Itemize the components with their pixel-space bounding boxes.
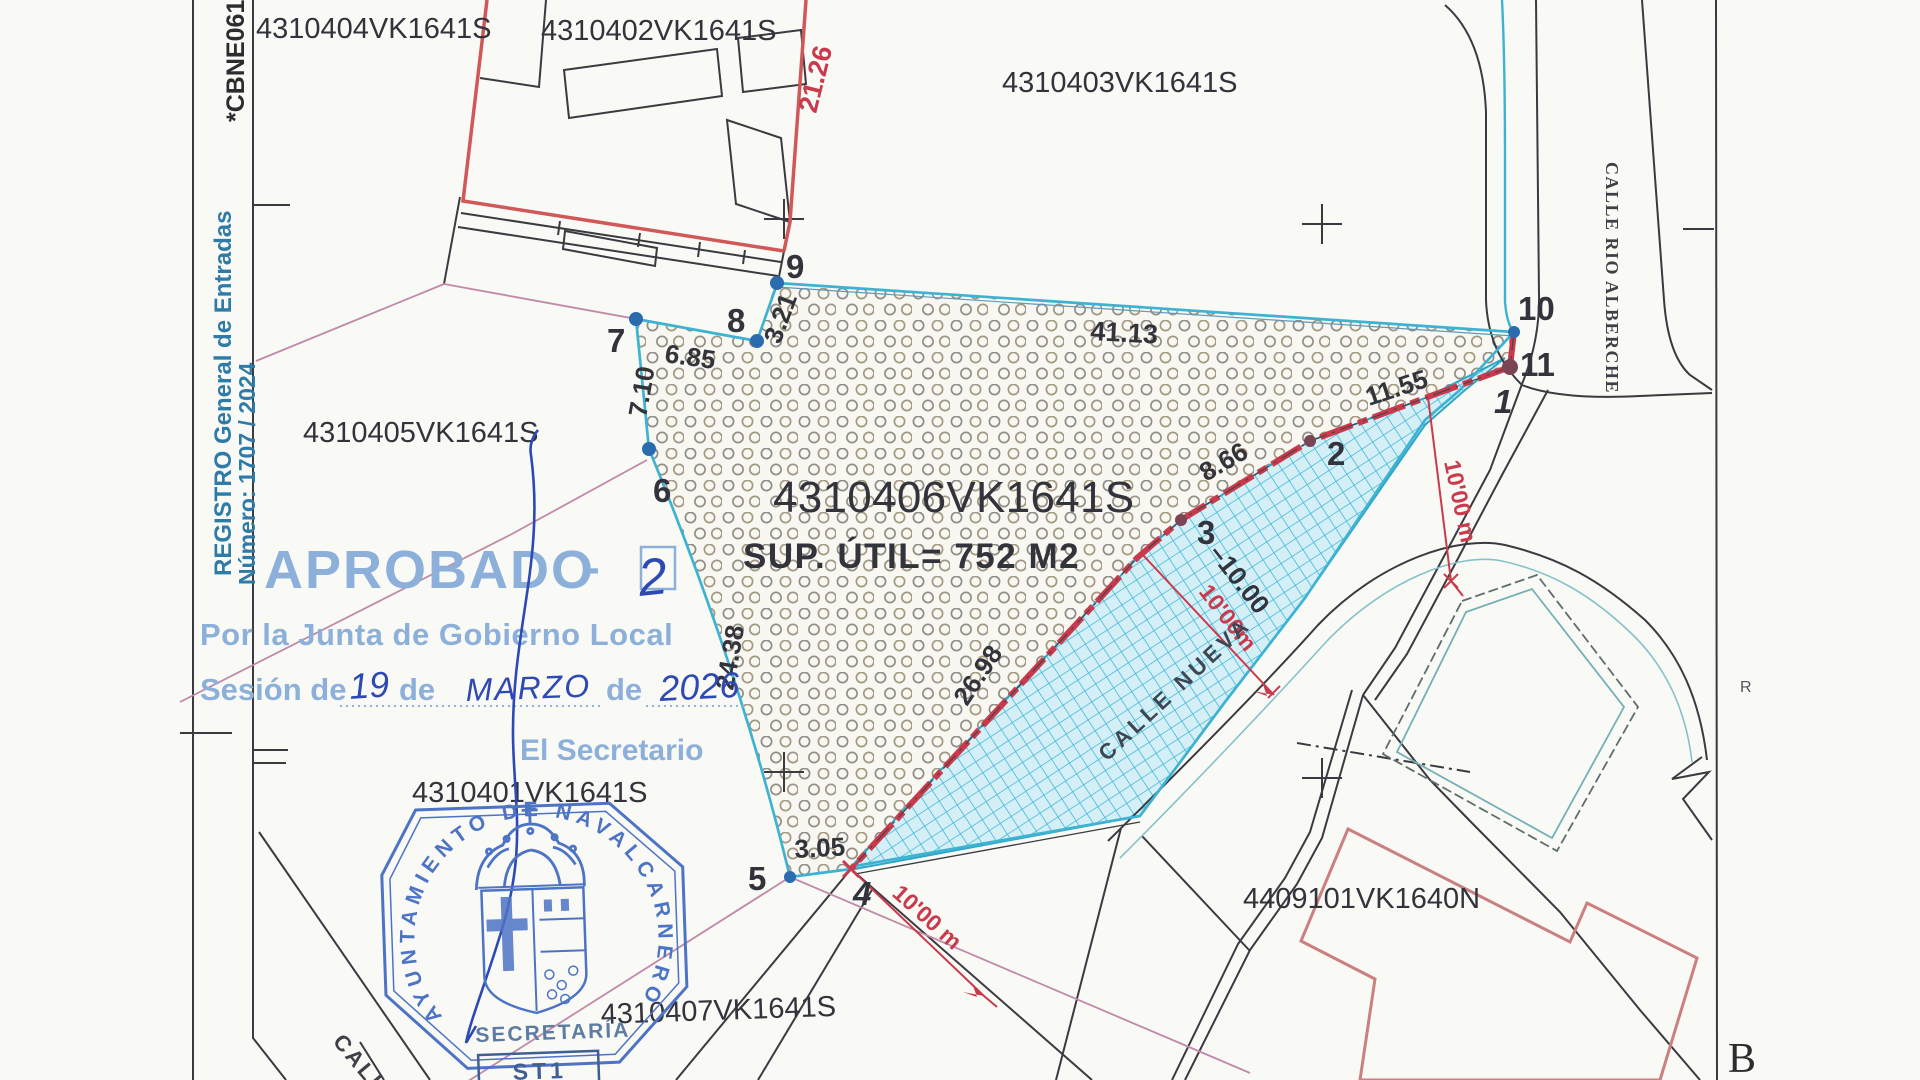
svg-text:10: 10 — [1518, 290, 1555, 327]
svg-text:de: de — [399, 672, 435, 707]
svg-text:7: 7 — [607, 322, 625, 359]
svg-text:4310402VK1641S: 4310402VK1641S — [541, 15, 776, 47]
svg-text:4409101VK1640N: 4409101VK1640N — [1243, 883, 1480, 915]
svg-text:R: R — [1740, 679, 1752, 696]
svg-text:APROBADO: APROBADO — [264, 540, 595, 600]
svg-text:1: 1 — [1494, 383, 1512, 420]
svg-text:2026: 2026 — [657, 664, 741, 709]
svg-text:El Secretario: El Secretario — [520, 734, 703, 767]
svg-text:de: de — [606, 672, 642, 707]
svg-text:8: 8 — [727, 302, 745, 339]
svg-text:Sesión de: Sesión de — [200, 672, 346, 707]
svg-text:11: 11 — [1520, 346, 1555, 383]
svg-text:*CBNE061: *CBNE061 — [222, 0, 250, 122]
svg-text:Número: 1707 / 2024: Número: 1707 / 2024 — [234, 362, 260, 585]
svg-text:9: 9 — [786, 248, 804, 285]
svg-text:4: 4 — [852, 875, 871, 912]
svg-text:41.13: 41.13 — [1090, 316, 1159, 349]
svg-text:3.05: 3.05 — [794, 831, 846, 864]
svg-text:Por la Junta de Gobierno Local: Por la Junta de Gobierno Local — [200, 617, 673, 652]
svg-text:19: 19 — [348, 663, 391, 707]
svg-text:4310404VK1641S: 4310404VK1641S — [256, 13, 491, 45]
svg-text:4310403VK1641S: 4310403VK1641S — [1002, 67, 1237, 99]
svg-text:4310405VK1641S: 4310405VK1641S — [303, 417, 538, 449]
svg-text:5: 5 — [748, 860, 766, 897]
svg-text:3: 3 — [1197, 514, 1215, 551]
svg-text:2: 2 — [1327, 435, 1345, 472]
svg-text:MARZO: MARZO — [465, 668, 592, 708]
svg-text:4310406VK1641S: 4310406VK1641S — [773, 473, 1134, 522]
svg-text:2: 2 — [634, 547, 670, 608]
svg-text:SUP. ÚTIL= 752 M2: SUP. ÚTIL= 752 M2 — [743, 536, 1080, 576]
svg-text:REGISTRO General de Entradas: REGISTRO General de Entradas — [210, 211, 237, 576]
svg-text:B: B — [1728, 1036, 1756, 1080]
svg-text:ST1: ST1 — [512, 1057, 567, 1080]
svg-text:6: 6 — [653, 472, 671, 509]
svg-text:-: - — [585, 543, 600, 592]
svg-text:CALLE RIO ALBERCHE: CALLE RIO ALBERCHE — [1602, 162, 1622, 394]
